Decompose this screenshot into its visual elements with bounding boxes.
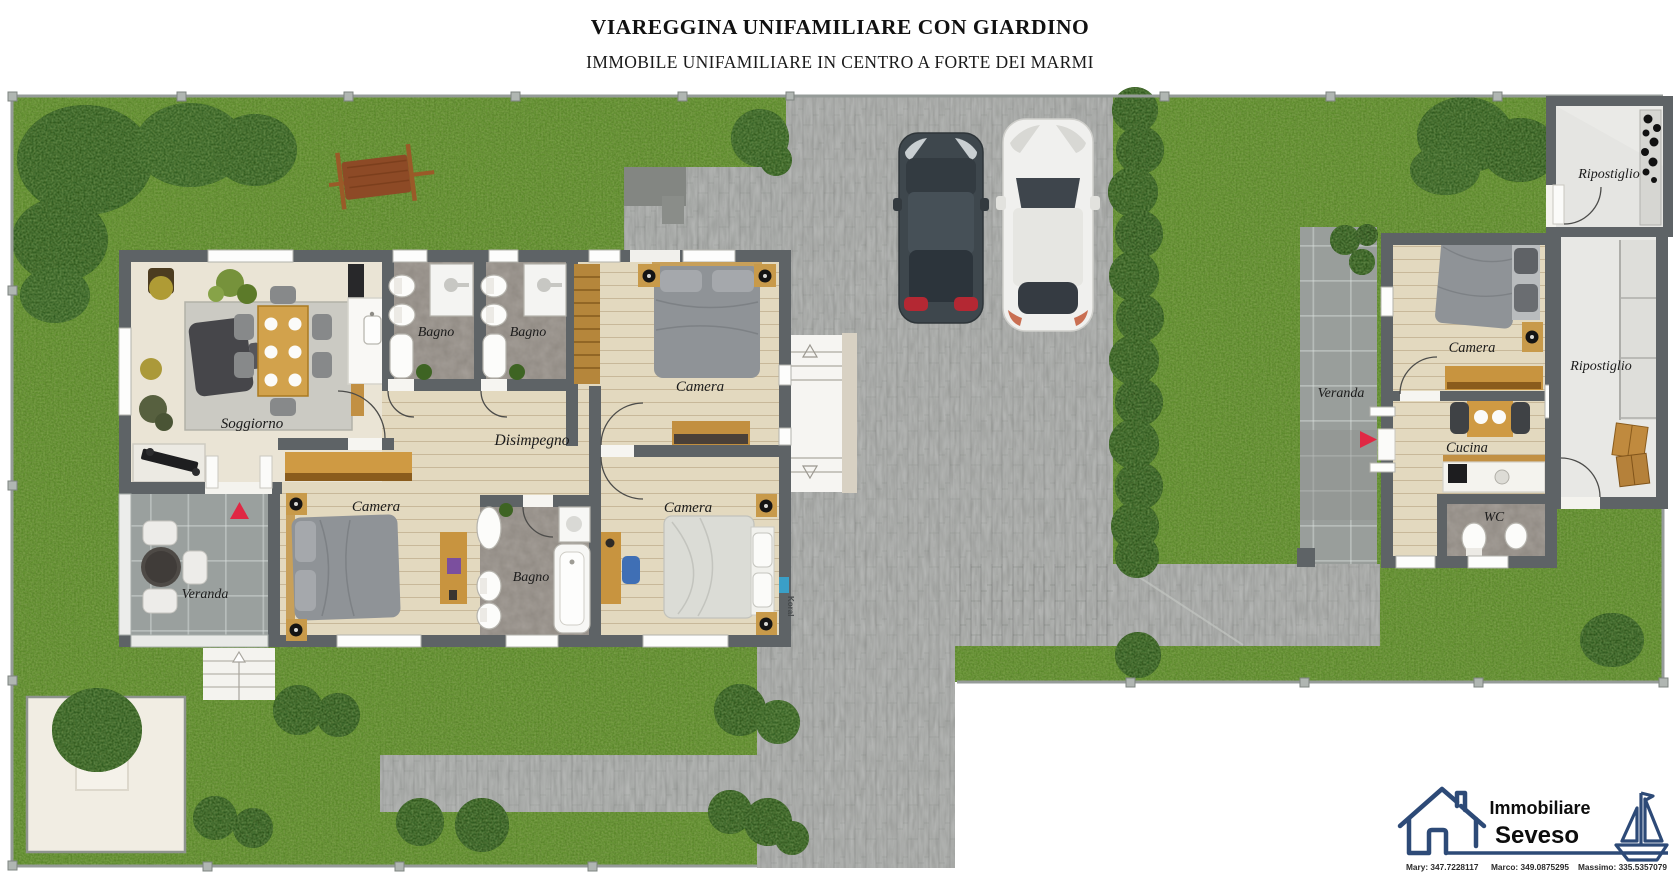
svg-text:VIAREGGINA UNIFAMILIARE CON GI: VIAREGGINA UNIFAMILIARE CON GIARDINO	[591, 15, 1089, 39]
svg-text:Bagno: Bagno	[418, 325, 455, 340]
svg-text:Camera: Camera	[1449, 340, 1496, 356]
svg-text:Immobiliare: Immobiliare	[1489, 798, 1590, 818]
svg-text:Bagno: Bagno	[513, 570, 550, 585]
svg-text:Cucina: Cucina	[1446, 440, 1488, 456]
svg-text:Soggiorno: Soggiorno	[221, 416, 284, 432]
svg-text:Koral: Koral	[786, 596, 795, 616]
svg-text:Ripostiglio: Ripostiglio	[1569, 359, 1631, 374]
svg-text:Disimpegno: Disimpegno	[494, 432, 570, 449]
svg-text:Camera: Camera	[352, 499, 400, 515]
svg-text:IMMOBILE UNIFAMILIARE IN CENTR: IMMOBILE UNIFAMILIARE IN CENTRO A FORTE …	[586, 52, 1094, 72]
svg-text:Mary: 347.7228117: Mary: 347.7228117	[1406, 862, 1479, 872]
svg-text:Camera: Camera	[676, 379, 724, 395]
svg-text:Ripostiglio: Ripostiglio	[1577, 167, 1639, 182]
svg-text:Marco: 349.0875295: Marco: 349.0875295	[1491, 862, 1569, 872]
svg-text:Seveso: Seveso	[1495, 822, 1579, 849]
svg-text:Bagno: Bagno	[510, 325, 547, 340]
svg-text:Veranda: Veranda	[182, 587, 229, 602]
svg-text:Massimo: 335.5357079: Massimo: 335.5357079	[1578, 862, 1667, 872]
svg-text:Camera: Camera	[664, 500, 712, 516]
svg-text:Veranda: Veranda	[1318, 386, 1365, 401]
svg-text:WC: WC	[1484, 509, 1505, 524]
